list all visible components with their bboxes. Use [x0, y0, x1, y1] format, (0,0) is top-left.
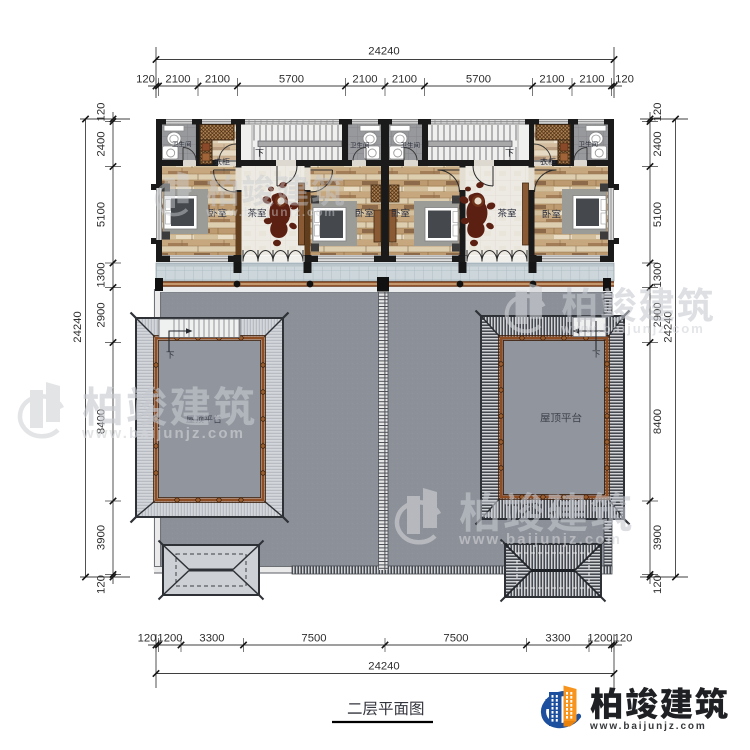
svg-text:2100: 2100 [352, 74, 377, 86]
svg-text:3300: 3300 [545, 633, 570, 645]
svg-text:120: 120 [96, 103, 108, 122]
svg-text:www.baijunjz.com: www.baijunjz.com [458, 531, 622, 548]
svg-text:2100: 2100 [539, 74, 564, 86]
svg-text:120: 120 [138, 633, 157, 645]
svg-text:1300: 1300 [96, 262, 108, 287]
svg-text:3900: 3900 [652, 525, 664, 550]
svg-text:www.baijunjz.com: www.baijunjz.com [589, 721, 707, 732]
svg-text:1200: 1200 [157, 633, 182, 645]
svg-text:120: 120 [652, 575, 664, 594]
svg-text:2100: 2100 [205, 74, 230, 86]
svg-text:www.baijunjz.com: www.baijunjz.com [81, 425, 245, 442]
svg-text:3300: 3300 [199, 633, 224, 645]
svg-text:7500: 7500 [301, 633, 326, 645]
svg-text:1200: 1200 [587, 633, 612, 645]
svg-text:2100: 2100 [165, 74, 190, 86]
svg-text:5700: 5700 [466, 74, 491, 86]
svg-text:120: 120 [652, 103, 664, 122]
svg-text:5700: 5700 [279, 74, 304, 86]
svg-text:8400: 8400 [652, 409, 664, 434]
svg-text:2400: 2400 [652, 131, 664, 156]
svg-text:120: 120 [136, 74, 155, 86]
svg-text:2100: 2100 [392, 74, 417, 86]
svg-text:2900: 2900 [96, 302, 108, 327]
svg-text:120: 120 [614, 633, 633, 645]
svg-text:www.baijunjz.com: www.baijunjz.com [205, 205, 336, 219]
svg-text:5100: 5100 [652, 202, 664, 227]
svg-text:2100: 2100 [579, 74, 604, 86]
svg-text:www.baijunjz.com: www.baijunjz.com [560, 321, 704, 336]
svg-text:120: 120 [615, 74, 634, 86]
svg-text:7500: 7500 [443, 633, 468, 645]
svg-text:24240: 24240 [368, 46, 399, 58]
svg-text:120: 120 [96, 575, 108, 594]
svg-text:3900: 3900 [96, 525, 108, 550]
svg-text:24240: 24240 [368, 661, 399, 673]
svg-text:2400: 2400 [96, 131, 108, 156]
svg-text:5100: 5100 [96, 202, 108, 227]
svg-text:24240: 24240 [72, 311, 84, 342]
svg-text:1300: 1300 [652, 262, 664, 287]
